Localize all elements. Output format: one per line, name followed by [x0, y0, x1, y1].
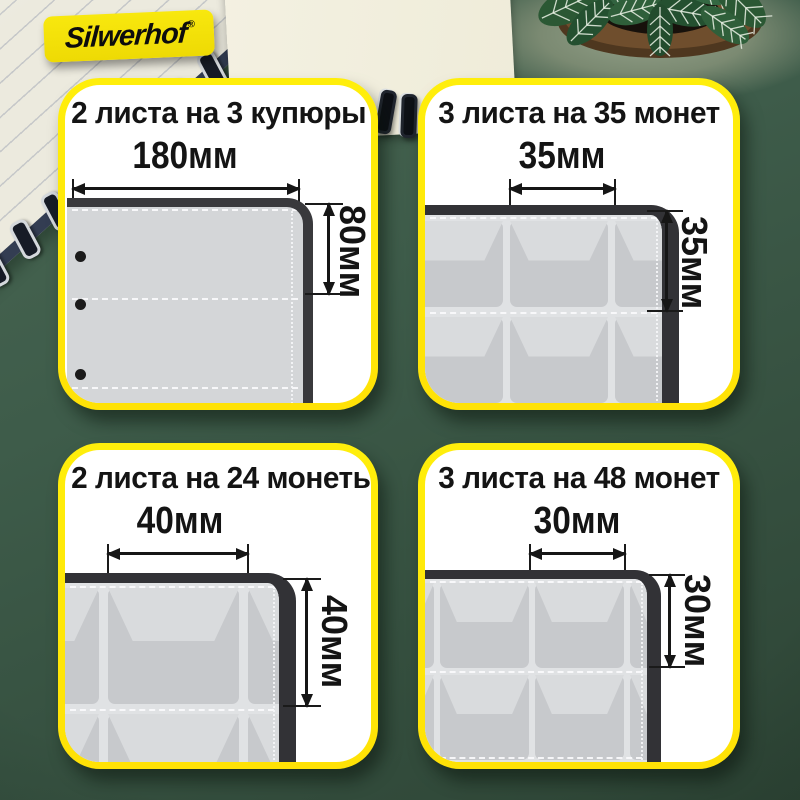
coin-pocket: [65, 588, 99, 704]
stitch-line: [430, 757, 642, 759]
spiral-binding: [0, 0, 46, 9]
card-title: 2 листа на 24 монеты: [71, 460, 365, 496]
coin-pocket: [425, 675, 434, 760]
height-dimension-label: 30мм: [676, 566, 718, 676]
stitch-line: [430, 217, 657, 219]
card-face: 2 листа на 3 купюры 180мм 80мм: [65, 85, 371, 403]
height-dimension-arrow: [305, 579, 308, 706]
coin-pocket: [425, 317, 503, 403]
punch-hole-icon: [75, 299, 86, 310]
stitch-line: [430, 671, 642, 673]
coin-pocket: [440, 675, 529, 760]
coin-pocket: [615, 317, 679, 403]
pocket-grid: [425, 215, 662, 403]
banknote-sleeve-sheet: [67, 198, 313, 403]
stitch-line: [72, 298, 298, 300]
coin-pocket: [535, 583, 624, 668]
registered-trademark-icon: ®: [187, 19, 195, 30]
height-dimension-arrow: [668, 575, 671, 667]
card-title: 2 листа на 3 купюры: [71, 95, 365, 131]
potted-plant: [500, 0, 800, 70]
width-dimension-arrow: [530, 552, 625, 555]
coin-pocket: [630, 675, 661, 760]
seam-dots: [291, 211, 293, 403]
stitch-line: [70, 709, 274, 711]
card-face: 3 листа на 48 монет 30мм 30мм: [425, 450, 733, 762]
stitch-line: [430, 312, 657, 314]
card-banknote-sleeves: 2 листа на 3 купюры 180мм 80мм: [58, 78, 378, 410]
card-face: 3 листа на 35 монет 35мм 35мм: [425, 85, 733, 403]
coin-pocket: [630, 583, 661, 668]
coin-pocket: [108, 714, 239, 762]
card-coin-30: 3 листа на 48 монет 30мм 30мм: [418, 443, 740, 769]
brand-logo: Silwerhof ®: [43, 9, 215, 62]
brand-logo-text: Silwerhof: [64, 17, 187, 55]
width-dimension-arrow: [510, 187, 615, 190]
card-coin-40: 2 листа на 24 монеты 40мм 40мм: [58, 443, 378, 769]
coin-pocket: [510, 317, 608, 403]
punch-hole-icon: [75, 251, 86, 262]
coil-icon: [7, 217, 43, 261]
width-dimension-label: 35мм: [456, 135, 667, 178]
height-dimension-label: 80мм: [331, 197, 371, 307]
pocket-grid: [65, 583, 279, 762]
coin-pocket: [425, 583, 434, 668]
card-coin-35: 3 листа на 35 монет 35мм 35мм: [418, 78, 740, 410]
width-dimension-arrow: [73, 187, 299, 190]
coil-icon: [400, 94, 418, 139]
punch-hole-icon: [75, 369, 86, 380]
seam-dots: [641, 583, 643, 762]
coin-pocket: [535, 675, 624, 760]
width-dimension-label: 30мм: [471, 500, 682, 543]
coin-pocket-sheet: [65, 573, 296, 762]
coin-pocket: [248, 588, 296, 704]
stitch-line: [430, 581, 642, 583]
coin-pocket-sheet: [425, 205, 679, 403]
stitch-line: [72, 387, 298, 389]
stitch-line: [70, 586, 274, 588]
height-dimension-arrow: [327, 204, 330, 294]
coin-pocket: [65, 714, 99, 762]
coin-pocket-sheet: [425, 570, 661, 762]
coil-icon: [0, 245, 12, 289]
stitch-line: [72, 209, 298, 211]
coin-pocket: [510, 221, 608, 307]
width-dimension-label: 40мм: [74, 500, 285, 543]
seam-dots: [273, 587, 275, 762]
coin-pocket: [108, 588, 239, 704]
coin-pocket: [425, 221, 503, 307]
card-title: 3 листа на 35 монет: [431, 95, 727, 131]
height-dimension-label: 40мм: [313, 582, 355, 702]
width-dimension-label: 180мм: [79, 135, 290, 178]
height-dimension-arrow: [665, 211, 668, 311]
coin-pocket: [615, 221, 679, 307]
coin-pocket: [248, 714, 296, 762]
card-title: 3 листа на 48 монет: [431, 460, 727, 496]
height-dimension-label: 35мм: [673, 205, 715, 320]
card-face: 2 листа на 24 монеты 40мм 40мм: [65, 450, 371, 762]
coin-pocket: [440, 583, 529, 668]
width-dimension-arrow: [108, 552, 248, 555]
